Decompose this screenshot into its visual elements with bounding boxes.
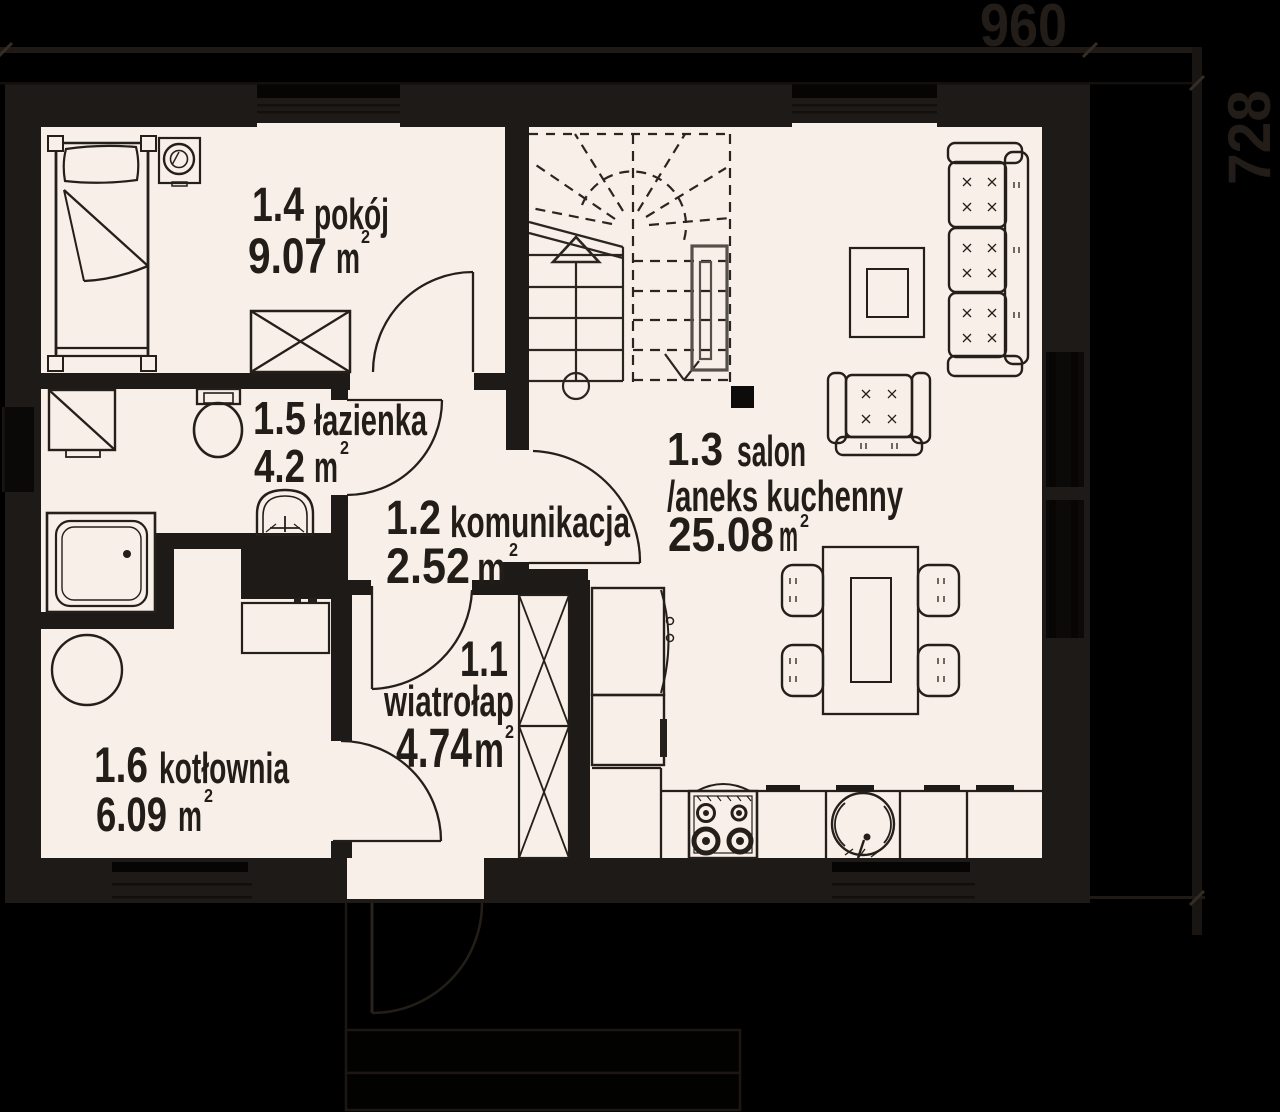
svg-text:960: 960 [980,0,1067,59]
svg-text:9.07: 9.07 [248,228,327,284]
svg-text:728: 728 [1216,90,1280,185]
svg-text:2: 2 [509,540,518,560]
svg-text:4.74: 4.74 [396,716,472,779]
svg-text:m: m [178,792,202,841]
svg-text:1.3: 1.3 [667,423,723,475]
svg-text:m: m [779,512,798,561]
svg-text:1.4: 1.4 [252,179,304,232]
svg-text:2: 2 [361,227,370,247]
svg-text:m: m [477,544,506,593]
svg-text:1.5: 1.5 [253,392,306,444]
svg-text:łazienka: łazienka [314,396,427,445]
svg-text:2: 2 [204,786,213,806]
svg-text:6.09: 6.09 [96,789,167,842]
svg-text:salon: salon [737,427,806,476]
svg-text:1.6: 1.6 [94,737,148,793]
svg-text:m: m [314,443,338,492]
svg-text:25.08: 25.08 [668,509,774,562]
svg-text:2: 2 [505,722,514,742]
svg-text:2.52: 2.52 [386,538,470,594]
svg-text:2: 2 [800,511,809,531]
svg-text:m: m [336,234,360,283]
svg-text:4.2: 4.2 [254,440,305,492]
svg-text:kotłownia: kotłownia [159,744,289,793]
svg-text:m: m [474,722,504,778]
svg-text:2: 2 [340,438,349,458]
svg-text:komunikacja: komunikacja [450,498,630,547]
